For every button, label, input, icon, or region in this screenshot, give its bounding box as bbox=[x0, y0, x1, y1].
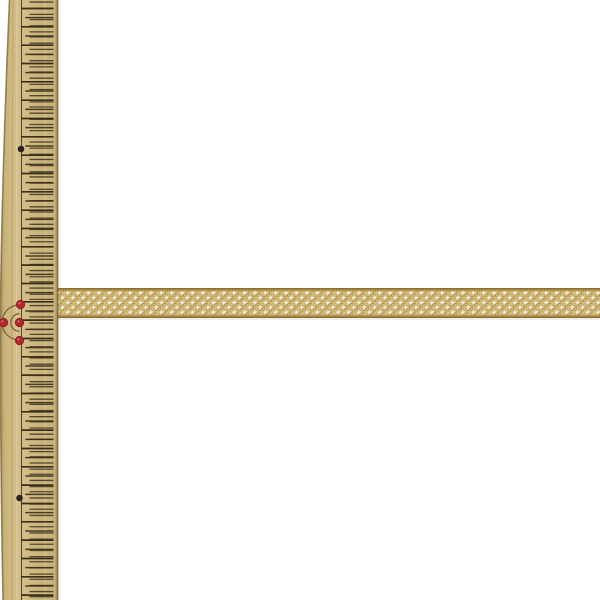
ribbon-bottom-edge-line bbox=[56, 317, 600, 318]
product-photo bbox=[0, 0, 600, 600]
gold-mesh-ribbon bbox=[56, 288, 600, 320]
ribbon-net-sparkle bbox=[56, 288, 600, 318]
photo-scene bbox=[0, 0, 600, 600]
ribbon-top-edge-line bbox=[56, 288, 600, 289]
ribbon-drop-shadow bbox=[56, 318, 600, 320]
wooden-ruler bbox=[0, 0, 62, 600]
ruler-cast-shadow bbox=[58, 0, 62, 600]
